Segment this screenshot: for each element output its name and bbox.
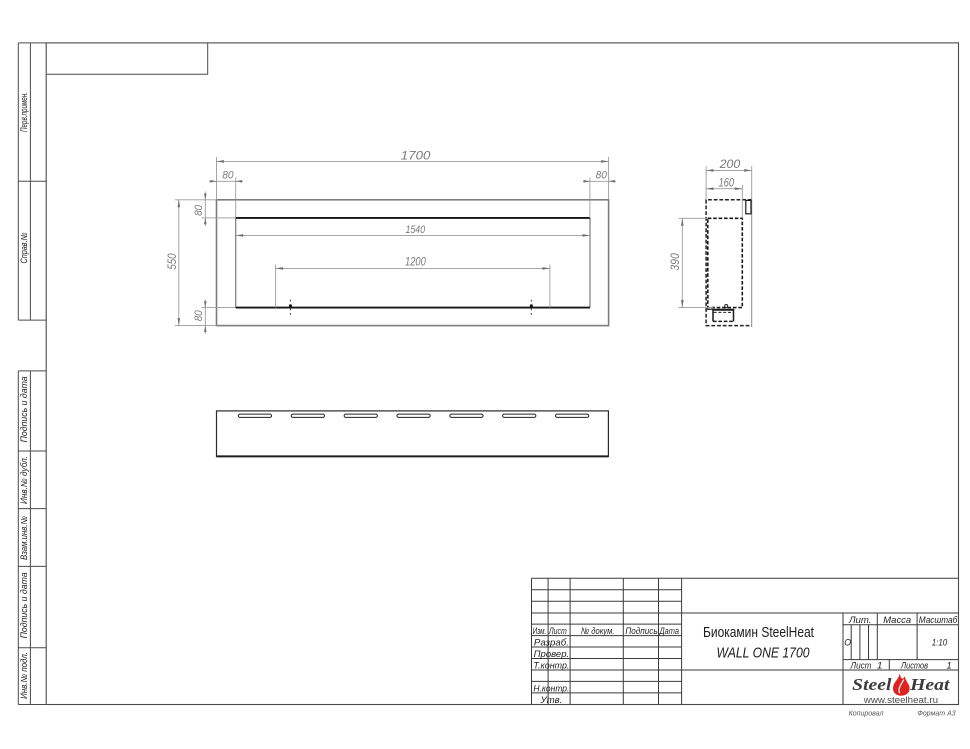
- svg-text:Утв.: Утв.: [540, 695, 563, 706]
- svg-text:80: 80: [193, 310, 205, 322]
- svg-text:Инв.№ подл.: Инв.№ подл.: [19, 652, 29, 699]
- svg-text:Инв.№ дубл.: Инв.№ дубл.: [19, 456, 29, 504]
- svg-text:Лит.: Лит.: [848, 615, 871, 626]
- svg-text:Н.контр.: Н.контр.: [533, 683, 569, 694]
- svg-text:WALL ONE 1700: WALL ONE 1700: [717, 646, 810, 662]
- svg-text:Разраб.: Разраб.: [534, 637, 569, 648]
- svg-text:550: 550: [165, 253, 179, 269]
- svg-text:Взам.инв.№: Взам.инв.№: [19, 516, 29, 560]
- svg-text:№ докум.: № докум.: [581, 626, 615, 637]
- svg-text:1700: 1700: [401, 148, 431, 162]
- svg-text:Изм.: Изм.: [533, 626, 547, 637]
- svg-text:390: 390: [668, 253, 682, 271]
- svg-text:Копировал: Копировал: [849, 710, 884, 717]
- svg-text:1200: 1200: [405, 255, 426, 269]
- svg-text:1:10: 1:10: [932, 638, 948, 649]
- svg-text:Steel: Steel: [852, 675, 892, 694]
- svg-text:Листов: Листов: [900, 660, 928, 671]
- svg-text:80: 80: [193, 204, 205, 216]
- svg-text:www.steelheat.ru: www.steelheat.ru: [863, 695, 938, 706]
- svg-text:1540: 1540: [406, 224, 426, 236]
- svg-text:80: 80: [596, 170, 608, 182]
- svg-text:Справ.№: Справ.№: [19, 233, 29, 264]
- svg-text:80: 80: [222, 170, 234, 182]
- svg-text:Масса: Масса: [883, 615, 911, 626]
- svg-text:Перв.примен.: Перв.примен.: [19, 92, 29, 132]
- svg-text:Подпись: Подпись: [625, 626, 657, 637]
- svg-text:200: 200: [719, 157, 741, 171]
- svg-text:Масштаб: Масштаб: [919, 615, 958, 626]
- svg-text:Дата: Дата: [659, 626, 679, 637]
- svg-text:Heat: Heat: [909, 675, 950, 694]
- svg-text:1: 1: [946, 660, 951, 671]
- svg-text:160: 160: [718, 175, 734, 189]
- svg-text:1: 1: [877, 660, 882, 671]
- svg-text:Биокамин SteelHeat: Биокамин SteelHeat: [703, 625, 814, 641]
- svg-text:Провер.: Провер.: [534, 649, 570, 660]
- svg-text:Т.контр.: Т.контр.: [533, 660, 569, 671]
- svg-text:Лист: Лист: [548, 626, 567, 637]
- svg-text:О: О: [844, 637, 851, 647]
- svg-text:Подпись и дата: Подпись и дата: [19, 376, 29, 442]
- svg-text:Лист: Лист: [850, 660, 872, 671]
- svg-text:Подпись и дата: Подпись и дата: [19, 572, 29, 638]
- svg-text:Формат А3: Формат А3: [917, 710, 955, 717]
